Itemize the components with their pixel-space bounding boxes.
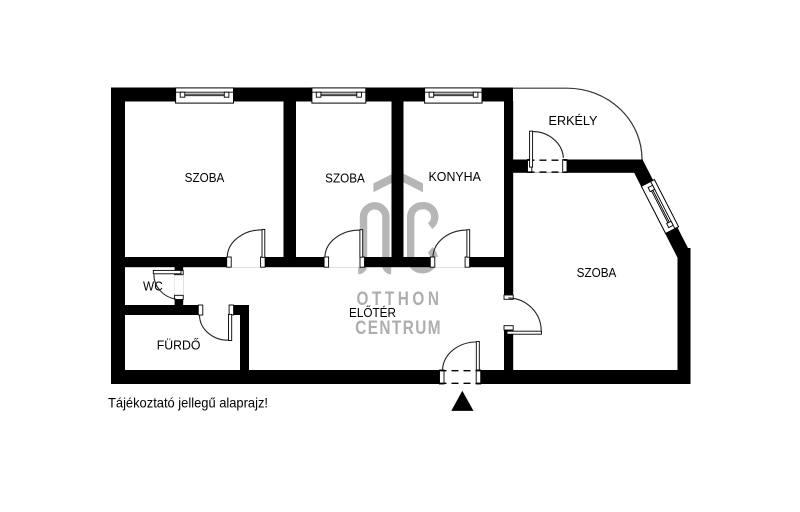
- svg-text:SZOBA: SZOBA: [185, 171, 225, 185]
- svg-text:Tájékoztató jellegű alaprajz!: Tájékoztató jellegű alaprajz!: [108, 394, 268, 410]
- svg-text:WC: WC: [143, 279, 163, 293]
- svg-text:FÜRDŐ: FÜRDŐ: [157, 338, 201, 353]
- svg-text:SZOBA: SZOBA: [577, 266, 617, 280]
- svg-text:SZOBA: SZOBA: [325, 171, 365, 185]
- svg-text:KONYHA: KONYHA: [429, 170, 482, 184]
- svg-text:ERKÉLY: ERKÉLY: [549, 113, 598, 128]
- svg-text:ELŐTÉR: ELŐTÉR: [349, 305, 396, 320]
